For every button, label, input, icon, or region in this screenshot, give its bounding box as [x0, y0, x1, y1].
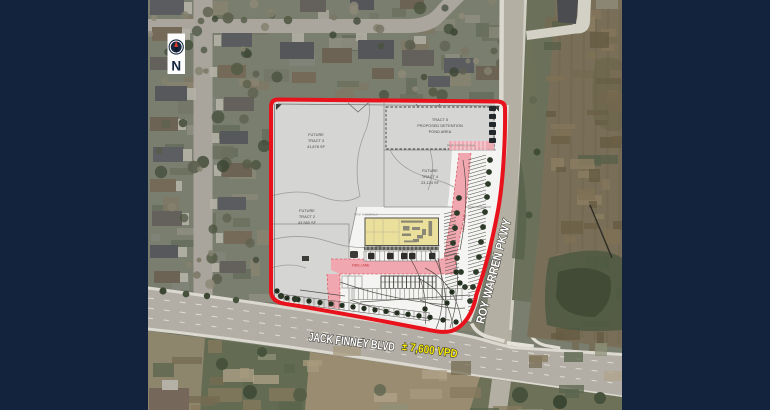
svg-text:41,878 SF: 41,878 SF — [307, 144, 326, 149]
svg-text:43,560 SF: 43,560 SF — [298, 220, 317, 225]
svg-text:PROPOSED DETENTION: PROPOSED DETENTION — [417, 123, 463, 128]
svg-text:FIRE LANE: FIRE LANE — [352, 264, 370, 268]
svg-text:FUTURE: FUTURE — [299, 208, 315, 213]
svg-text:FUTURE: FUTURE — [308, 132, 324, 137]
svg-text:TRACT 2: TRACT 2 — [299, 214, 315, 219]
svg-text:PROP. TRAFFIC SIGNAL: PROP. TRAFFIC SIGNAL — [447, 145, 476, 148]
svg-text:TRACT 3: TRACT 3 — [308, 138, 324, 143]
svg-text:FUTURE: FUTURE — [422, 168, 438, 173]
svg-text:TRACT 4: TRACT 4 — [422, 174, 439, 179]
svg-text:POND AREA: POND AREA — [429, 129, 452, 134]
svg-text:PROP. 6' SIDEWALK: PROP. 6' SIDEWALK — [354, 214, 378, 217]
svg-text:23,124 SF: 23,124 SF — [421, 180, 440, 185]
svg-text:N: N — [171, 59, 181, 74]
svg-text:TRACT 5: TRACT 5 — [432, 117, 448, 122]
